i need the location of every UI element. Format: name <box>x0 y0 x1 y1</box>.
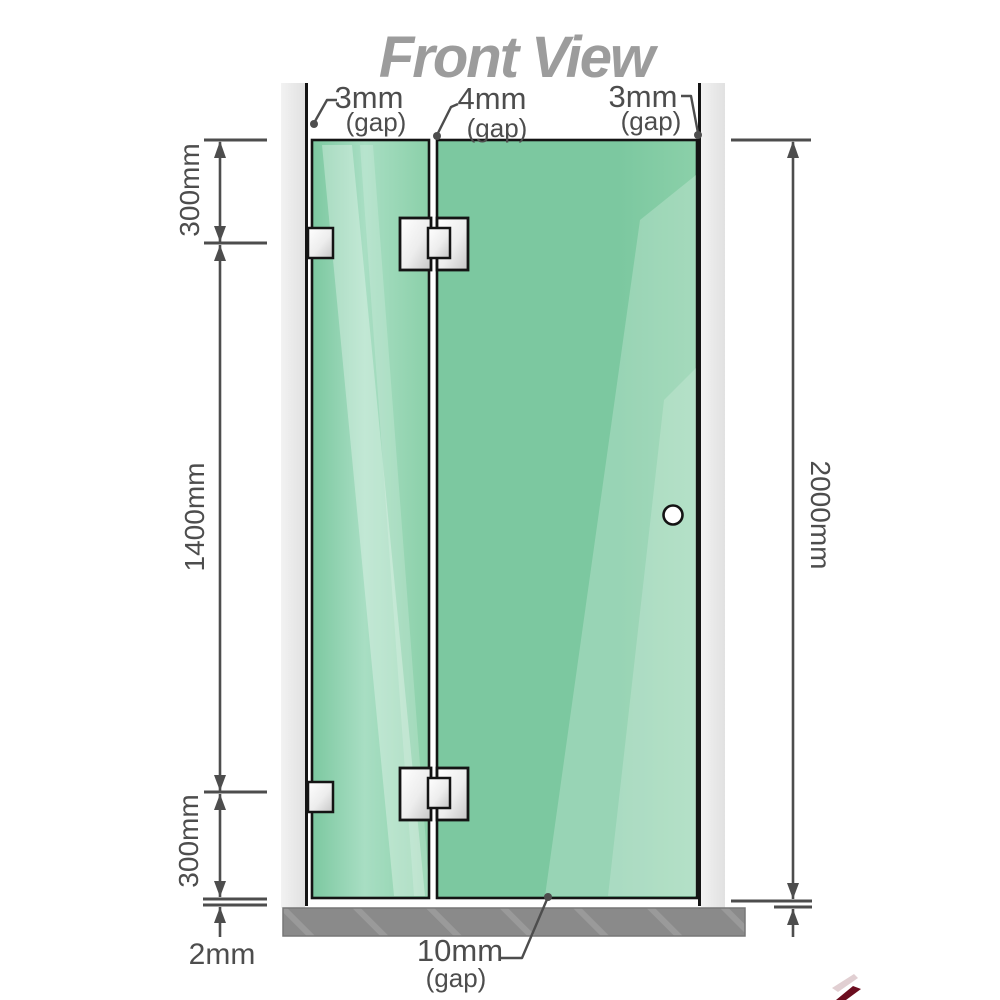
arrowhead <box>787 883 799 899</box>
shower-screen-front-view-diagram: Front View <box>0 0 1000 1000</box>
right-wall <box>701 83 725 908</box>
dim-label-300-bottom: 300mm <box>173 794 204 887</box>
logo-fragment <box>832 974 861 1000</box>
arrowhead <box>214 226 226 242</box>
leader-line <box>437 104 458 135</box>
gap-top-left-caption: (gap) <box>346 107 407 137</box>
hinge-top-knuckle <box>428 228 450 258</box>
dim-label-2000: 2000mm <box>805 461 836 570</box>
dim-label-1400: 1400mm <box>179 463 210 572</box>
arrowhead <box>214 245 226 261</box>
hinge-bottom <box>400 768 468 820</box>
dim-label-300-top: 300mm <box>174 143 205 236</box>
floor-base <box>283 908 745 936</box>
arrowhead <box>214 141 226 158</box>
callout-gap-top-right: 3mm (gap) <box>609 79 702 139</box>
leader-dot <box>433 132 441 140</box>
leader-dot <box>310 120 318 128</box>
glass-panels <box>312 140 697 898</box>
arrowhead <box>787 141 799 158</box>
dim-label-2mm: 2mm <box>189 938 256 971</box>
arrowhead <box>214 775 226 791</box>
hinge-top-left-plate <box>400 218 431 270</box>
callout-gap-top-middle: 4mm (gap) <box>433 81 527 143</box>
leader-line <box>314 100 337 123</box>
gap-top-middle-value: 4mm <box>458 81 527 116</box>
arrowhead <box>214 881 226 897</box>
gap-top-middle-caption: (gap) <box>467 113 528 143</box>
hinge-top <box>400 218 468 270</box>
leader-dot <box>544 893 552 901</box>
leader-dot <box>694 131 702 139</box>
gap-top-right-caption: (gap) <box>621 106 682 136</box>
leader-line <box>681 96 698 133</box>
callout-gap-top-left: 3mm (gap) <box>310 80 406 137</box>
wall-bracket-top <box>308 228 333 258</box>
arrowhead <box>787 909 799 925</box>
arrowhead <box>214 794 226 810</box>
dimension-right: 2000mm <box>731 140 836 937</box>
dimension-left: 300mm 1400mm 300mm 2mm <box>173 140 267 971</box>
left-wall <box>281 83 305 908</box>
hinge-bottom-knuckle <box>428 778 450 808</box>
door-knob <box>664 506 683 525</box>
hinge-bottom-left-plate <box>400 768 431 820</box>
diagram-canvas: Front View <box>0 0 1000 1000</box>
gap-bottom-caption: (gap) <box>426 963 487 993</box>
wall-bracket-bottom <box>308 782 333 812</box>
arrowhead <box>214 907 226 923</box>
